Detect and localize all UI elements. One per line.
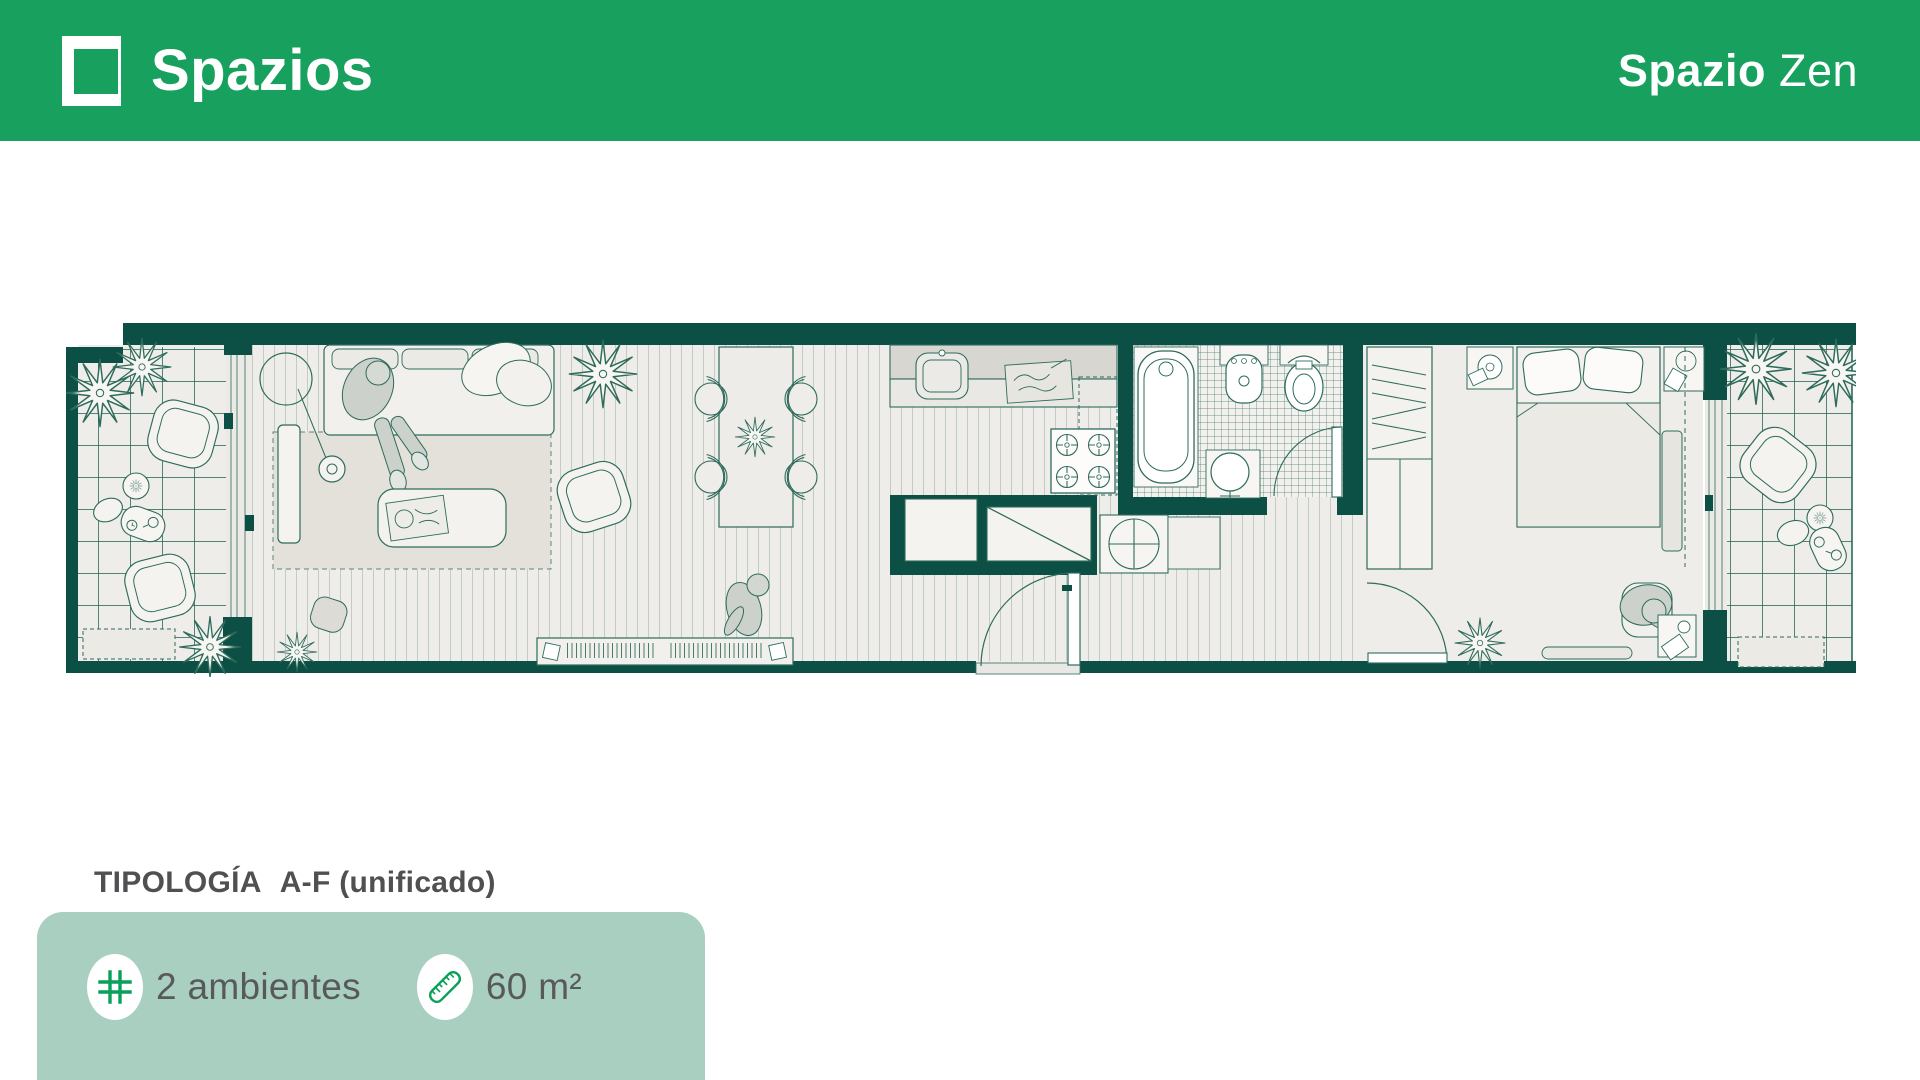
- project-title: SpazioZen: [1618, 45, 1858, 97]
- typology-value: A-F (unificado): [280, 866, 496, 899]
- floor-plan-svg: [66, 317, 1856, 677]
- rooms-label: 2 ambientes: [156, 966, 361, 1008]
- feature-rooms: 2 ambientes: [87, 954, 361, 1020]
- features-card: 2 ambientes 60 m²: [37, 912, 705, 1080]
- feature-area: 60 m²: [417, 954, 582, 1020]
- brand-name: Spazios: [151, 37, 374, 104]
- typology-label: TIPOLOGÍA: [94, 866, 262, 899]
- ruler-icon: [425, 967, 465, 1007]
- project-title-light: Zen: [1779, 45, 1858, 96]
- rooms-icon-circle: [87, 954, 143, 1020]
- balcony-sliding-door: [226, 345, 252, 661]
- grid-icon: [97, 969, 133, 1005]
- bathroom: [1133, 345, 1343, 499]
- typology-title: TIPOLOGÍAA-F (unificado): [94, 866, 496, 900]
- page: Spazios SpazioZen: [0, 0, 1920, 1080]
- area-icon-circle: [417, 954, 473, 1020]
- app-header: Spazios SpazioZen: [0, 0, 1920, 141]
- floor-plan-image: [66, 317, 1856, 677]
- brand-logo: Spazios: [62, 36, 374, 106]
- project-title-bold: Spazio: [1618, 45, 1766, 96]
- area-label: 60 m²: [486, 966, 582, 1008]
- logo-square-icon: [62, 36, 121, 106]
